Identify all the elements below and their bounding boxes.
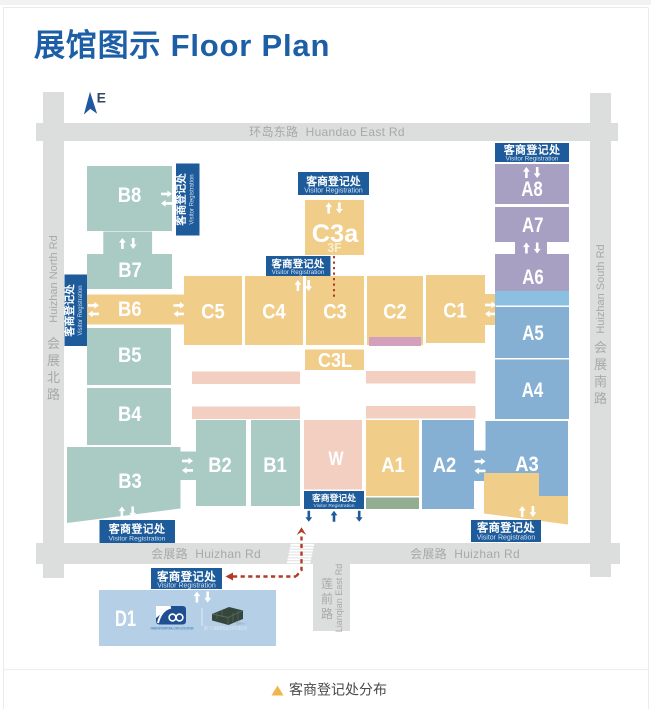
svg-text:路: 路 (321, 606, 333, 621)
svg-text:C1: C1 (443, 299, 467, 323)
svg-text:B5: B5 (118, 343, 142, 367)
svg-text:A2: A2 (433, 453, 457, 477)
svg-text:会展路 Huizhan Rd: 会展路 Huizhan Rd (410, 546, 520, 561)
svg-text:A3: A3 (515, 452, 539, 476)
svg-text:A6: A6 (522, 266, 544, 289)
svg-text:厦门人造板研究设计院有限公司: 厦门人造板研究设计院有限公司 (204, 626, 247, 631)
svg-text:Huizhan North Rd: Huizhan North Rd (48, 235, 60, 322)
svg-text:B8: B8 (118, 183, 142, 207)
svg-text:展: 展 (47, 353, 60, 368)
svg-text:A1: A1 (381, 453, 405, 477)
svg-text:C3: C3 (323, 300, 347, 324)
svg-text:莲: 莲 (321, 577, 333, 591)
svg-text:客商登记处: 客商登记处 (156, 569, 216, 583)
svg-text:A5: A5 (522, 322, 544, 345)
svg-text:A7: A7 (522, 214, 544, 237)
svg-text:展: 展 (594, 357, 607, 372)
svg-text:客商登记处: 客商登记处 (311, 492, 356, 503)
svg-text:Huizhan South Rd: Huizhan South Rd (595, 244, 607, 333)
svg-text:C5: C5 (201, 300, 225, 324)
svg-text:路: 路 (594, 391, 607, 406)
svg-text:Visitor Registration: Visitor Registration (157, 582, 216, 589)
svg-text:Visitor Registration: Visitor Registration (78, 285, 84, 335)
svg-text:D1: D1 (115, 606, 136, 631)
svg-text:客商登记处: 客商登记处 (175, 173, 188, 227)
svg-text:C3L: C3L (318, 350, 352, 372)
svg-text:B4: B4 (118, 402, 142, 426)
svg-text:Lianqian East Rd: Lianqian East Rd (334, 564, 344, 633)
svg-text:Visitor Registration: Visitor Registration (190, 174, 196, 224)
svg-text:Visitor Registration: Visitor Registration (272, 269, 325, 276)
svg-text:B3: B3 (118, 469, 142, 493)
svg-text:Visitor Registration: Visitor Registration (109, 536, 166, 543)
svg-text:C4: C4 (262, 300, 286, 324)
svg-text:客商登记处: 客商登记处 (108, 522, 166, 536)
svg-text:前: 前 (321, 591, 333, 606)
svg-text:Visitor Registration: Visitor Registration (314, 503, 355, 509)
svg-text:A8: A8 (521, 178, 543, 201)
svg-text:C2: C2 (383, 300, 407, 324)
svg-text:会: 会 (47, 336, 60, 351)
svg-text:A4: A4 (522, 379, 544, 402)
svg-text:B7: B7 (118, 258, 142, 282)
svg-text:B1: B1 (263, 453, 287, 477)
svg-text:Visitor Registration: Visitor Registration (477, 535, 536, 542)
svg-text:客商登记处分布: 客商登记处分布 (289, 682, 387, 698)
svg-text:路: 路 (47, 387, 60, 402)
svg-text:Visitor Registration: Visitor Registration (304, 188, 363, 195)
svg-text:会: 会 (594, 340, 607, 355)
svg-text:展馆图示 Floor Plan: 展馆图示 Floor Plan (34, 28, 330, 63)
svg-text:客商登记处: 客商登记处 (63, 284, 76, 338)
svg-text:环岛东路 Huandao East Rd: 环岛东路 Huandao East Rd (249, 124, 405, 139)
svg-text:3F: 3F (327, 241, 342, 255)
svg-text:XIAMEN INTERNATIONAL CONF & EX: XIAMEN INTERNATIONAL CONF & EXH CENTER (151, 627, 194, 631)
svg-text:B6: B6 (118, 297, 142, 321)
svg-text:会展路 Huizhan Rd: 会展路 Huizhan Rd (151, 546, 261, 561)
svg-text:B2: B2 (208, 453, 232, 477)
svg-text:E: E (97, 90, 106, 106)
svg-text:南: 南 (594, 374, 607, 389)
svg-text:Visitor Registration: Visitor Registration (506, 156, 559, 163)
svg-text:W: W (329, 449, 344, 470)
svg-text:客商登记处: 客商登记处 (305, 174, 361, 188)
svg-text:客商登记处: 客商登记处 (476, 520, 535, 534)
svg-text:北: 北 (47, 370, 60, 385)
